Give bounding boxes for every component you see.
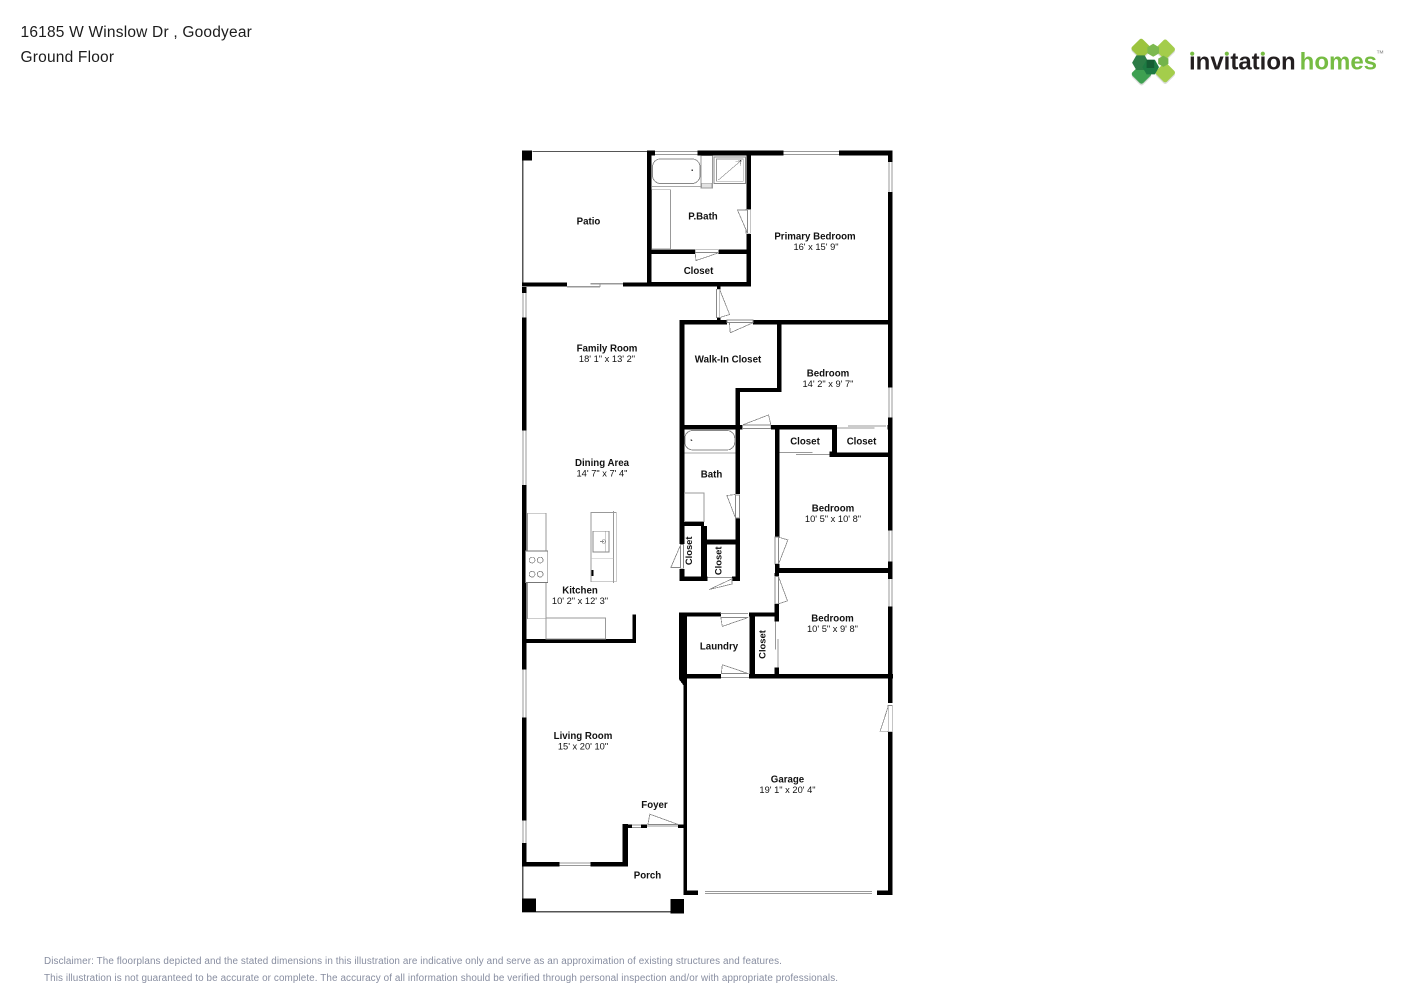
svg-text:Foyer: Foyer bbox=[641, 800, 668, 811]
svg-text:invitationhomes: invitationhomes bbox=[1189, 49, 1377, 76]
svg-text:Closet: Closet bbox=[683, 536, 694, 565]
svg-text:Closet: Closet bbox=[790, 437, 820, 448]
svg-text:.: . bbox=[16, 994, 21, 995]
svg-text:10' 2" x 12' 3": 10' 2" x 12' 3" bbox=[552, 596, 608, 606]
svg-text:Closet: Closet bbox=[713, 546, 724, 575]
svg-text:14' 2" x 9' 7": 14' 2" x 9' 7" bbox=[803, 379, 854, 389]
svg-text:16185 W Winslow Dr , Goodyear: 16185 W Winslow Dr , Goodyear bbox=[21, 24, 253, 41]
svg-text:Closet: Closet bbox=[684, 266, 714, 277]
svg-text:10' 5" x 9' 8": 10' 5" x 9' 8" bbox=[807, 624, 858, 634]
svg-text:10' 5" x 10' 8": 10' 5" x 10' 8" bbox=[805, 514, 861, 524]
svg-text:Closet: Closet bbox=[847, 437, 877, 448]
svg-text:Ground Floor: Ground Floor bbox=[21, 49, 115, 66]
svg-text:P.Bath: P.Bath bbox=[688, 212, 718, 223]
svg-text:Porch: Porch bbox=[634, 871, 662, 882]
svg-text:18' 1" x 13' 2": 18' 1" x 13' 2" bbox=[579, 354, 635, 364]
svg-text:Patio: Patio bbox=[577, 217, 601, 228]
svg-text:16' x 15' 9": 16' x 15' 9" bbox=[793, 242, 838, 252]
svg-text:Bath: Bath bbox=[701, 470, 723, 481]
svg-text:Laundry: Laundry bbox=[700, 642, 739, 653]
svg-text:™: ™ bbox=[1376, 49, 1384, 58]
svg-text:This illustration is not guara: This illustration is not guaranteed to b… bbox=[44, 973, 838, 984]
svg-text:15' x 20' 10": 15' x 20' 10" bbox=[558, 741, 608, 751]
svg-text:19' 1" x 20' 4": 19' 1" x 20' 4" bbox=[759, 785, 815, 795]
svg-text:Walk-In Closet: Walk-In Closet bbox=[695, 355, 762, 366]
svg-text:Closet: Closet bbox=[757, 630, 768, 659]
svg-text:Disclaimer: The floorplans dep: Disclaimer: The floorplans depicted and … bbox=[44, 956, 782, 967]
svg-text:14' 7" x 7' 4": 14' 7" x 7' 4" bbox=[577, 468, 628, 478]
svg-text:.: . bbox=[1404, 995, 1409, 996]
